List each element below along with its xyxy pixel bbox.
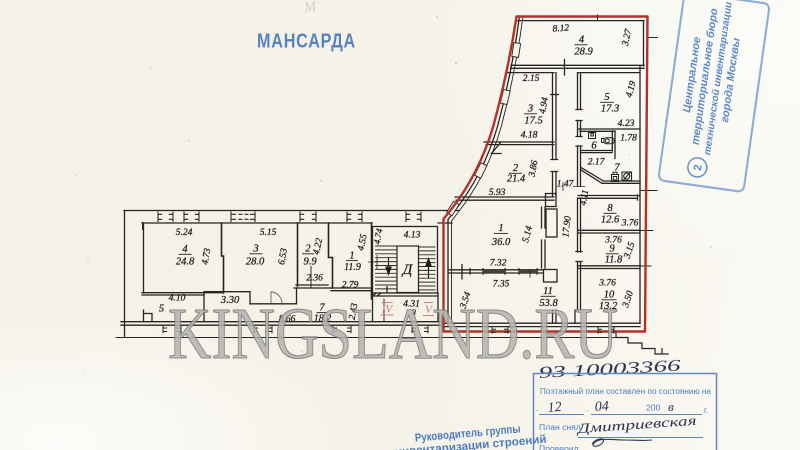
svg-text:8: 8 (607, 203, 613, 214)
svg-text:5: 5 (159, 304, 164, 315)
svg-text:1.78: 1.78 (620, 134, 637, 144)
svg-text:04: 04 (594, 399, 609, 415)
svg-text:12.6: 12.6 (601, 215, 620, 226)
svg-text:8.12: 8.12 (552, 23, 570, 34)
svg-text:Поэтажный план составлен по со: Поэтажный план составлен по состоянию на (540, 386, 711, 396)
svg-text:6.53: 6.53 (277, 247, 290, 265)
svg-text:3.76: 3.76 (598, 279, 616, 289)
svg-text:24.8: 24.8 (176, 257, 195, 268)
svg-text:Дмитриевская: Дмитриевская (574, 413, 697, 436)
svg-text:17.3: 17.3 (601, 104, 619, 115)
svg-text:11.9: 11.9 (344, 262, 361, 273)
svg-text:3.76: 3.76 (621, 219, 639, 229)
svg-text:9: 9 (609, 244, 615, 255)
svg-text:12: 12 (547, 400, 562, 416)
svg-text:5.14: 5.14 (521, 225, 535, 244)
svg-text:4: 4 (182, 244, 188, 255)
svg-text:2.17: 2.17 (588, 158, 606, 168)
svg-text:3: 3 (252, 244, 258, 255)
svg-text:М: М (302, 0, 318, 16)
svg-text:7: 7 (614, 163, 620, 174)
svg-text:1: 1 (498, 223, 503, 234)
svg-text:3.15: 3.15 (622, 241, 637, 261)
svg-text:3.86: 3.86 (527, 159, 540, 178)
svg-text:3.27: 3.27 (621, 27, 635, 48)
svg-text:28.0: 28.0 (246, 257, 265, 268)
svg-text:2: 2 (692, 164, 705, 172)
svg-text:Д: Д (401, 262, 414, 278)
svg-text:4.22: 4.22 (312, 237, 325, 256)
svg-text:3.50: 3.50 (621, 290, 636, 310)
svg-text:2: 2 (305, 244, 311, 255)
svg-text:.: . (586, 404, 588, 413)
svg-text:9.9: 9.9 (303, 257, 317, 268)
svg-text:5.93: 5.93 (489, 188, 506, 198)
svg-text:4.19: 4.19 (625, 80, 639, 99)
svg-text:6: 6 (591, 141, 597, 152)
svg-text:36.0: 36.0 (491, 237, 511, 248)
svg-text:2.36: 2.36 (306, 274, 323, 284)
svg-text:7.35: 7.35 (493, 280, 510, 290)
svg-text:2.15: 2.15 (523, 74, 540, 84)
svg-text:МАНСАРДА: МАНСАРДА (257, 30, 356, 53)
svg-text:11.8: 11.8 (605, 255, 623, 266)
svg-text:17.5: 17.5 (524, 116, 542, 127)
svg-text:4.74: 4.74 (372, 227, 385, 245)
svg-text:4.73: 4.73 (201, 247, 214, 265)
svg-text:200: 200 (646, 403, 661, 413)
svg-text:28.9: 28.9 (574, 47, 593, 58)
svg-text:4.11: 4.11 (579, 189, 592, 206)
svg-text:г.: г. (704, 406, 708, 415)
svg-text:1.47: 1.47 (557, 180, 575, 190)
svg-text:План снял: План снял (539, 422, 581, 432)
svg-text:4.94: 4.94 (538, 96, 551, 114)
svg-text:2: 2 (513, 163, 519, 174)
svg-text:3: 3 (527, 104, 533, 115)
svg-text:17.90: 17.90 (561, 215, 574, 238)
svg-text:.: . (536, 404, 538, 413)
svg-text:21.4: 21.4 (507, 174, 526, 185)
svg-text:2.79: 2.79 (342, 281, 359, 291)
svg-text:7.32: 7.32 (490, 259, 507, 269)
svg-text:4: 4 (579, 35, 585, 46)
svg-text:5: 5 (604, 92, 609, 103)
svg-text:4.13: 4.13 (404, 231, 421, 241)
svg-text:в: в (668, 399, 674, 414)
svg-text:4.18: 4.18 (521, 131, 538, 141)
svg-text:1: 1 (350, 251, 355, 262)
svg-text:4.23: 4.23 (618, 119, 635, 129)
svg-text:5.15: 5.15 (260, 228, 277, 238)
svg-text:5.24: 5.24 (176, 228, 193, 238)
svg-text:4.55: 4.55 (356, 233, 369, 252)
